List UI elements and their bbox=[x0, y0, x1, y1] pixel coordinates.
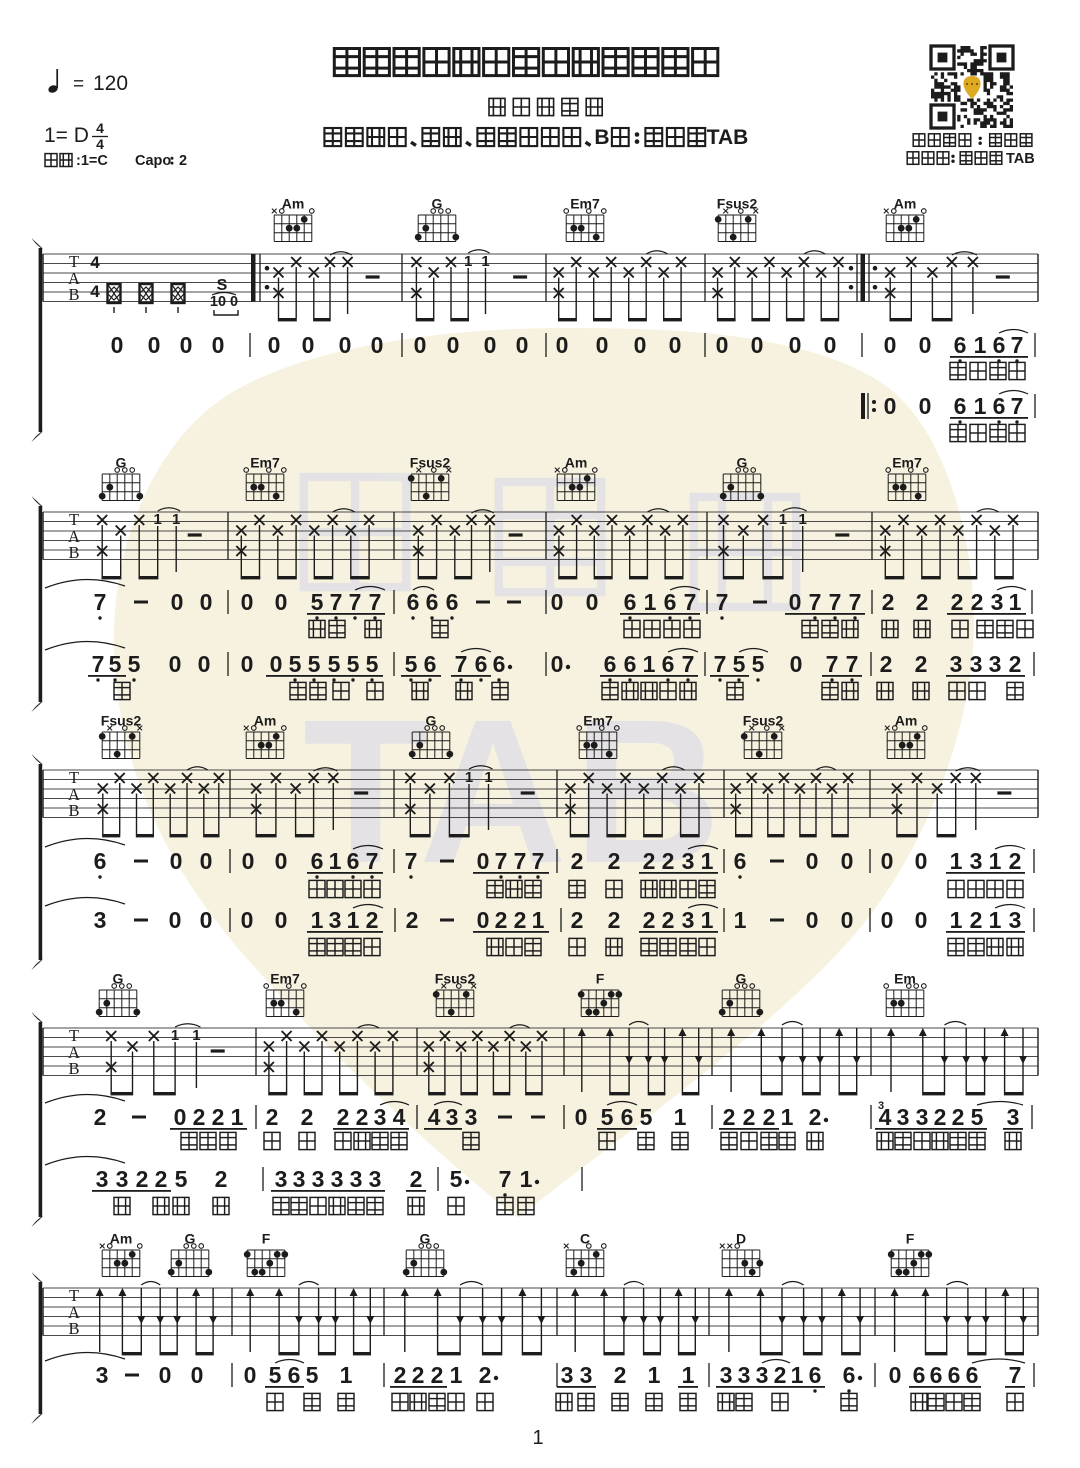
svg-text:2: 2 bbox=[970, 907, 983, 933]
svg-text:Em: Em bbox=[894, 971, 916, 987]
svg-text:0: 0 bbox=[198, 651, 211, 677]
svg-text:0: 0 bbox=[789, 332, 802, 358]
svg-text:2: 2 bbox=[608, 848, 621, 874]
svg-text:0: 0 bbox=[339, 332, 352, 358]
svg-text:5: 5 bbox=[752, 651, 765, 677]
svg-text:6: 6 bbox=[662, 651, 675, 677]
svg-text:0: 0 bbox=[884, 393, 897, 419]
svg-text:TAB: TAB bbox=[1006, 151, 1035, 167]
svg-text:3: 3 bbox=[293, 1166, 306, 1192]
svg-text:Fsus2: Fsus2 bbox=[717, 196, 758, 212]
svg-text:1: 1 bbox=[1009, 589, 1022, 615]
svg-text:7: 7 bbox=[349, 589, 362, 615]
svg-text:B: B bbox=[68, 543, 79, 562]
svg-text:7: 7 bbox=[92, 651, 105, 677]
svg-text:Em7: Em7 bbox=[583, 713, 613, 729]
svg-text:2: 2 bbox=[495, 907, 508, 933]
svg-text:0: 0 bbox=[244, 1362, 257, 1388]
svg-text:0: 0 bbox=[200, 848, 213, 874]
svg-text:2: 2 bbox=[571, 848, 584, 874]
svg-text:3: 3 bbox=[350, 1166, 363, 1192]
svg-text:1: 1 bbox=[781, 1104, 794, 1130]
svg-text:3: 3 bbox=[312, 1166, 325, 1192]
svg-text:1: 1 bbox=[532, 907, 545, 933]
svg-text:0: 0 bbox=[212, 332, 225, 358]
svg-text:0: 0 bbox=[191, 1362, 204, 1388]
svg-text:7: 7 bbox=[514, 848, 527, 874]
svg-text:3: 3 bbox=[275, 1166, 288, 1192]
svg-text:1: 1 bbox=[648, 1362, 661, 1388]
svg-text:0: 0 bbox=[230, 294, 238, 310]
svg-text:0: 0 bbox=[200, 589, 213, 615]
svg-text:0: 0 bbox=[551, 589, 564, 615]
svg-text:6: 6 bbox=[424, 651, 437, 677]
svg-text:0: 0 bbox=[477, 907, 490, 933]
svg-text:0: 0 bbox=[556, 332, 569, 358]
svg-text:1: 1 bbox=[171, 1027, 179, 1044]
svg-text:B: B bbox=[68, 801, 79, 820]
svg-text:0: 0 bbox=[919, 393, 932, 419]
svg-text:2: 2 bbox=[916, 589, 929, 615]
svg-text:7: 7 bbox=[330, 589, 343, 615]
svg-text:0: 0 bbox=[111, 332, 124, 358]
svg-text:2: 2 bbox=[412, 1362, 425, 1388]
svg-text:1: 1 bbox=[644, 589, 657, 615]
svg-text:0: 0 bbox=[824, 332, 837, 358]
svg-text:1: 1 bbox=[532, 1427, 543, 1449]
svg-text:0: 0 bbox=[915, 848, 928, 874]
svg-text:0: 0 bbox=[919, 332, 932, 358]
svg-text:B: B bbox=[68, 285, 79, 304]
svg-text:2: 2 bbox=[643, 907, 656, 933]
svg-text:0: 0 bbox=[268, 332, 281, 358]
svg-text:2: 2 bbox=[136, 1166, 149, 1192]
svg-text:7: 7 bbox=[495, 848, 508, 874]
svg-text:3: 3 bbox=[897, 1104, 910, 1130]
svg-text:0: 0 bbox=[302, 332, 315, 358]
svg-text:6: 6 bbox=[446, 589, 459, 615]
svg-text:6: 6 bbox=[288, 1362, 301, 1388]
svg-text:2: 2 bbox=[1009, 848, 1022, 874]
svg-text:Em7: Em7 bbox=[570, 196, 600, 212]
svg-text:Am: Am bbox=[895, 713, 918, 729]
svg-text:5: 5 bbox=[971, 1104, 984, 1130]
svg-text:5: 5 bbox=[109, 651, 122, 677]
svg-text:0: 0 bbox=[200, 907, 213, 933]
svg-text:6: 6 bbox=[311, 848, 324, 874]
svg-text:1: 1 bbox=[465, 769, 473, 786]
svg-text:2: 2 bbox=[971, 589, 984, 615]
svg-text:7: 7 bbox=[94, 589, 107, 615]
svg-text:1: 1 bbox=[974, 332, 987, 358]
svg-text:0: 0 bbox=[586, 589, 599, 615]
svg-text:F: F bbox=[262, 1231, 271, 1247]
svg-text:1: 1 bbox=[974, 393, 987, 419]
svg-text:1: 1 bbox=[674, 1104, 687, 1130]
svg-text:5: 5 bbox=[405, 651, 418, 677]
svg-text:0: 0 bbox=[447, 332, 460, 358]
svg-text:4: 4 bbox=[90, 253, 100, 272]
svg-text:0: 0 bbox=[414, 332, 427, 358]
svg-text:6: 6 bbox=[475, 651, 488, 677]
svg-text:1: 1 bbox=[450, 1362, 463, 1388]
svg-text:2: 2 bbox=[643, 848, 656, 874]
svg-text:3: 3 bbox=[1007, 1104, 1020, 1130]
svg-text:4: 4 bbox=[393, 1104, 406, 1130]
svg-text:0: 0 bbox=[242, 848, 255, 874]
svg-text:6: 6 bbox=[954, 393, 967, 419]
svg-text:1: 1 bbox=[484, 769, 492, 786]
svg-text:3: 3 bbox=[1009, 907, 1022, 933]
svg-text:5: 5 bbox=[289, 651, 302, 677]
svg-text:2: 2 bbox=[155, 1166, 168, 1192]
svg-text:3: 3 bbox=[561, 1362, 574, 1388]
svg-text:2: 2 bbox=[723, 1104, 736, 1130]
svg-text:3: 3 bbox=[446, 1104, 459, 1130]
svg-text:0: 0 bbox=[174, 1104, 187, 1130]
svg-text:0: 0 bbox=[884, 332, 897, 358]
svg-text:0: 0 bbox=[275, 907, 288, 933]
svg-text:2: 2 bbox=[266, 1104, 279, 1130]
svg-text:Em7: Em7 bbox=[270, 971, 300, 987]
svg-text:3: 3 bbox=[116, 1166, 129, 1192]
svg-text:0: 0 bbox=[841, 848, 854, 874]
svg-text:Am: Am bbox=[254, 713, 277, 729]
svg-text:3: 3 bbox=[96, 1362, 109, 1388]
svg-text:2: 2 bbox=[406, 907, 419, 933]
svg-text:1: 1 bbox=[734, 907, 747, 933]
svg-text:7: 7 bbox=[366, 848, 379, 874]
svg-text:0: 0 bbox=[806, 907, 819, 933]
svg-text:5: 5 bbox=[366, 651, 379, 677]
svg-text:1: 1 bbox=[329, 848, 342, 874]
svg-text:Em7: Em7 bbox=[250, 455, 280, 471]
svg-text:3: 3 bbox=[682, 907, 695, 933]
svg-text:6: 6 bbox=[664, 589, 677, 615]
svg-text:5: 5 bbox=[128, 651, 141, 677]
svg-text:6: 6 bbox=[954, 332, 967, 358]
svg-text:0: 0 bbox=[551, 651, 564, 677]
svg-text:0: 0 bbox=[669, 332, 682, 358]
svg-text:6: 6 bbox=[94, 848, 107, 874]
svg-text:=: = bbox=[73, 74, 84, 95]
svg-text:7: 7 bbox=[684, 589, 697, 615]
svg-text:1: 1 bbox=[682, 1362, 695, 1388]
svg-text:6: 6 bbox=[843, 1362, 856, 1388]
svg-text:5: 5 bbox=[640, 1104, 653, 1130]
svg-text:2: 2 bbox=[809, 1104, 822, 1130]
svg-text:7: 7 bbox=[532, 848, 545, 874]
svg-text:1: 1 bbox=[643, 651, 656, 677]
svg-text:6: 6 bbox=[948, 1362, 961, 1388]
svg-text:2: 2 bbox=[394, 1362, 407, 1388]
svg-text:0: 0 bbox=[159, 1362, 172, 1388]
svg-text:0: 0 bbox=[516, 332, 529, 358]
svg-text:7: 7 bbox=[826, 651, 839, 677]
svg-text:0: 0 bbox=[751, 332, 764, 358]
svg-text:6: 6 bbox=[621, 1104, 634, 1130]
svg-text:2: 2 bbox=[951, 589, 964, 615]
svg-text:5: 5 bbox=[269, 1362, 282, 1388]
svg-text:0: 0 bbox=[241, 651, 254, 677]
svg-text:6: 6 bbox=[426, 589, 439, 615]
svg-text:5: 5 bbox=[328, 651, 341, 677]
svg-text:Fsus2: Fsus2 bbox=[410, 455, 451, 471]
svg-text:6: 6 bbox=[624, 651, 637, 677]
svg-text:7: 7 bbox=[809, 589, 822, 615]
svg-text:Am: Am bbox=[110, 1231, 133, 1247]
svg-text:1: 1 bbox=[989, 848, 1002, 874]
svg-text:0: 0 bbox=[270, 651, 283, 677]
svg-text:6: 6 bbox=[347, 848, 360, 874]
svg-text:7: 7 bbox=[716, 589, 729, 615]
svg-text:3: 3 bbox=[329, 907, 342, 933]
svg-text:3: 3 bbox=[720, 1362, 733, 1388]
svg-text:5: 5 bbox=[601, 1104, 614, 1130]
svg-text:Em7: Em7 bbox=[892, 455, 922, 471]
svg-text:3: 3 bbox=[580, 1362, 593, 1388]
svg-text:10: 10 bbox=[210, 294, 226, 310]
svg-text:0: 0 bbox=[169, 907, 182, 933]
svg-text:0: 0 bbox=[596, 332, 609, 358]
svg-text:2: 2 bbox=[179, 153, 187, 169]
svg-text:2: 2 bbox=[882, 589, 895, 615]
svg-text:2: 2 bbox=[662, 907, 675, 933]
svg-text:7: 7 bbox=[714, 651, 727, 677]
svg-text:6: 6 bbox=[624, 589, 637, 615]
svg-text:3: 3 bbox=[94, 907, 107, 933]
svg-text:1: 1 bbox=[464, 253, 472, 270]
svg-text::1=C: :1=C bbox=[76, 153, 108, 169]
svg-text:0: 0 bbox=[790, 651, 803, 677]
svg-text:4: 4 bbox=[96, 136, 104, 152]
svg-text:Fsus2: Fsus2 bbox=[743, 713, 784, 729]
svg-text:1: 1 bbox=[192, 1027, 200, 1044]
svg-text:TAB: TAB bbox=[707, 126, 749, 149]
svg-text:B: B bbox=[68, 1059, 79, 1078]
svg-text:0: 0 bbox=[881, 848, 894, 874]
svg-text:5: 5 bbox=[347, 651, 360, 677]
svg-text:0: 0 bbox=[634, 332, 647, 358]
svg-text:S: S bbox=[217, 277, 228, 294]
svg-text:Capo: Capo bbox=[135, 153, 171, 169]
svg-text:6: 6 bbox=[604, 651, 617, 677]
svg-text:0: 0 bbox=[484, 332, 497, 358]
svg-text:4: 4 bbox=[90, 282, 100, 301]
svg-text:1: 1 bbox=[154, 511, 162, 528]
svg-text:F: F bbox=[596, 971, 605, 987]
svg-text:7: 7 bbox=[1011, 332, 1024, 358]
svg-text:1: 1 bbox=[311, 907, 324, 933]
svg-text:6: 6 bbox=[966, 1362, 979, 1388]
svg-text:1: 1 bbox=[520, 1166, 533, 1192]
svg-text:6: 6 bbox=[993, 393, 1006, 419]
svg-text:3: 3 bbox=[682, 848, 695, 874]
svg-text:2: 2 bbox=[193, 1104, 206, 1130]
svg-text:6: 6 bbox=[809, 1362, 822, 1388]
svg-text:4: 4 bbox=[879, 1104, 892, 1130]
svg-text:2: 2 bbox=[94, 1104, 107, 1130]
svg-text:0: 0 bbox=[575, 1104, 588, 1130]
svg-text:7: 7 bbox=[499, 1166, 512, 1192]
svg-text:B: B bbox=[594, 126, 609, 149]
svg-text:7: 7 bbox=[1009, 1362, 1022, 1388]
svg-text:0: 0 bbox=[915, 907, 928, 933]
svg-text:2: 2 bbox=[215, 1166, 228, 1192]
svg-text:1: 1 bbox=[231, 1104, 244, 1130]
svg-text:7: 7 bbox=[849, 589, 862, 615]
svg-text:3: 3 bbox=[738, 1362, 751, 1388]
svg-text:2: 2 bbox=[662, 848, 675, 874]
svg-text:3: 3 bbox=[331, 1166, 344, 1192]
svg-text:3: 3 bbox=[970, 651, 983, 677]
svg-text:3: 3 bbox=[916, 1104, 929, 1130]
svg-text:2: 2 bbox=[880, 651, 893, 677]
svg-text:Fsus2: Fsus2 bbox=[435, 971, 476, 987]
svg-text:2: 2 bbox=[356, 1104, 369, 1130]
svg-text:3: 3 bbox=[374, 1104, 387, 1130]
svg-text:6: 6 bbox=[734, 848, 747, 874]
svg-text:0: 0 bbox=[148, 332, 161, 358]
svg-text:5: 5 bbox=[311, 589, 324, 615]
svg-text:B: B bbox=[68, 1319, 79, 1338]
svg-text:0: 0 bbox=[241, 907, 254, 933]
svg-text:1: 1 bbox=[989, 907, 1002, 933]
svg-text:2: 2 bbox=[915, 651, 928, 677]
svg-text:0: 0 bbox=[169, 651, 182, 677]
svg-text:1: 1 bbox=[779, 511, 787, 528]
svg-text:3: 3 bbox=[756, 1362, 769, 1388]
svg-text:2: 2 bbox=[514, 907, 527, 933]
svg-text:1: 1 bbox=[701, 848, 714, 874]
svg-text:6: 6 bbox=[493, 651, 506, 677]
svg-text:0: 0 bbox=[180, 332, 193, 358]
svg-text:7: 7 bbox=[846, 651, 859, 677]
svg-text:1: 1 bbox=[950, 848, 963, 874]
svg-text:4: 4 bbox=[428, 1104, 441, 1130]
svg-text:0: 0 bbox=[789, 589, 802, 615]
svg-text:Am: Am bbox=[282, 196, 305, 212]
svg-text:3: 3 bbox=[950, 651, 963, 677]
svg-text:0: 0 bbox=[275, 848, 288, 874]
svg-text:0: 0 bbox=[171, 589, 184, 615]
svg-text:2: 2 bbox=[431, 1362, 444, 1388]
svg-text:Am: Am bbox=[565, 455, 588, 471]
svg-text:2: 2 bbox=[212, 1104, 225, 1130]
svg-text:0: 0 bbox=[477, 848, 490, 874]
svg-text:120: 120 bbox=[93, 72, 128, 95]
svg-text:1: 1 bbox=[791, 1362, 804, 1388]
svg-text:1: 1 bbox=[172, 511, 180, 528]
svg-text:5: 5 bbox=[733, 651, 746, 677]
svg-text:3: 3 bbox=[96, 1166, 109, 1192]
svg-text:5: 5 bbox=[308, 651, 321, 677]
svg-text:2: 2 bbox=[763, 1104, 776, 1130]
svg-text:3: 3 bbox=[465, 1104, 478, 1130]
svg-text:0: 0 bbox=[275, 589, 288, 615]
svg-text:0: 0 bbox=[716, 332, 729, 358]
svg-text:2: 2 bbox=[952, 1104, 965, 1130]
svg-text:0: 0 bbox=[841, 907, 854, 933]
svg-text:3: 3 bbox=[989, 651, 1002, 677]
svg-text:2: 2 bbox=[571, 907, 584, 933]
svg-text:6: 6 bbox=[913, 1362, 926, 1388]
svg-text:2: 2 bbox=[934, 1104, 947, 1130]
svg-text:3: 3 bbox=[970, 848, 983, 874]
svg-text:7: 7 bbox=[369, 589, 382, 615]
svg-text:7: 7 bbox=[829, 589, 842, 615]
svg-text:1: 1 bbox=[340, 1362, 353, 1388]
svg-text:2: 2 bbox=[774, 1362, 787, 1388]
svg-text:7: 7 bbox=[455, 651, 468, 677]
svg-text:2: 2 bbox=[366, 907, 379, 933]
svg-text:3: 3 bbox=[991, 589, 1004, 615]
svg-text:2: 2 bbox=[301, 1104, 314, 1130]
svg-text:2: 2 bbox=[743, 1104, 756, 1130]
svg-text:1: 1 bbox=[347, 907, 360, 933]
svg-text:0: 0 bbox=[881, 907, 894, 933]
svg-text:2: 2 bbox=[337, 1104, 350, 1130]
svg-text:7: 7 bbox=[405, 848, 418, 874]
svg-text:0: 0 bbox=[889, 1362, 902, 1388]
svg-text:F: F bbox=[906, 1231, 915, 1247]
svg-text:1: 1 bbox=[799, 511, 807, 528]
svg-text:6: 6 bbox=[407, 589, 420, 615]
svg-text:7: 7 bbox=[682, 651, 695, 677]
svg-text:Fsus2: Fsus2 bbox=[101, 713, 142, 729]
svg-text:5: 5 bbox=[450, 1166, 463, 1192]
svg-text:5: 5 bbox=[175, 1166, 188, 1192]
svg-text:2: 2 bbox=[614, 1362, 627, 1388]
svg-text:5: 5 bbox=[306, 1362, 319, 1388]
svg-text:2: 2 bbox=[608, 907, 621, 933]
svg-text:0: 0 bbox=[371, 332, 384, 358]
svg-text:2: 2 bbox=[1009, 651, 1022, 677]
svg-text:4: 4 bbox=[96, 120, 104, 136]
svg-text:6: 6 bbox=[993, 332, 1006, 358]
svg-text:2: 2 bbox=[410, 1166, 423, 1192]
svg-text:1: 1 bbox=[481, 253, 489, 270]
svg-text:3: 3 bbox=[369, 1166, 382, 1192]
svg-text:0: 0 bbox=[806, 848, 819, 874]
svg-text:0: 0 bbox=[241, 589, 254, 615]
svg-text:6: 6 bbox=[930, 1362, 943, 1388]
svg-text:1: 1 bbox=[950, 907, 963, 933]
svg-text:2: 2 bbox=[479, 1362, 492, 1388]
svg-text:1: 1 bbox=[701, 907, 714, 933]
svg-text:0: 0 bbox=[170, 848, 183, 874]
svg-text:Am: Am bbox=[894, 196, 917, 212]
svg-text:7: 7 bbox=[1011, 393, 1024, 419]
svg-text:1= D: 1= D bbox=[44, 124, 89, 147]
